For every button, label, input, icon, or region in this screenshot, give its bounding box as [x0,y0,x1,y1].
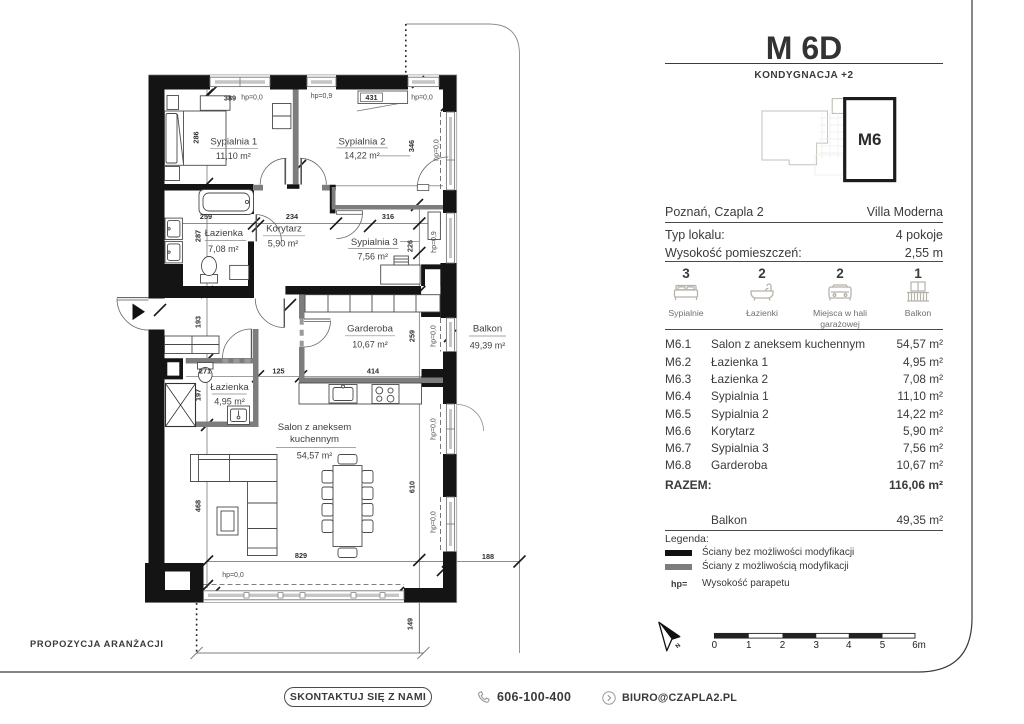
svg-text:4: 4 [846,640,852,651]
svg-text:414: 414 [367,367,380,376]
svg-text:Łazienka: Łazienka [205,228,244,239]
svg-text:5,90 m²: 5,90 m² [268,239,299,249]
svg-text:346: 346 [407,140,416,152]
svg-text:468: 468 [194,500,203,512]
svg-text:6m: 6m [912,640,926,651]
svg-text:54,57 m²: 54,57 m² [297,451,333,461]
svg-text:829: 829 [295,551,307,560]
svg-text:49,39 m²: 49,39 m² [470,341,506,351]
svg-text:hp=0,9: hp=0,9 [311,93,333,100]
svg-text:14,22 m²: 14,22 m² [344,151,380,161]
svg-text:M6: M6 [858,130,882,149]
svg-text:7,56 m²: 7,56 m² [357,252,388,262]
svg-text:226: 226 [406,240,415,252]
svg-text:Łazienka: Łazienka [210,382,249,393]
svg-text:259: 259 [200,212,212,221]
svg-text:hp=0,0: hp=0,0 [431,511,438,533]
svg-text:10,67 m²: 10,67 m² [352,340,388,350]
svg-text:234: 234 [286,212,299,221]
svg-text:316: 316 [382,212,394,221]
svg-text:1: 1 [746,640,751,651]
svg-text:7,08 m²: 7,08 m² [208,244,239,254]
svg-text:188: 188 [482,552,494,561]
svg-text:hp=0,0: hp=0,0 [222,572,244,579]
svg-text:3: 3 [814,640,820,651]
svg-text:hp=0,0: hp=0,0 [431,418,438,440]
svg-text:Sypialnia 2: Sypialnia 2 [339,137,386,148]
svg-text:kuchennym: kuchennym [290,434,339,445]
svg-text:149: 149 [406,618,415,630]
svg-text:hp=0,0: hp=0,0 [431,325,438,347]
svg-text:286: 286 [192,131,201,143]
svg-text:2: 2 [780,640,785,651]
svg-text:287: 287 [194,230,203,242]
svg-text:4,95 m²: 4,95 m² [214,397,245,407]
svg-text:N: N [675,643,682,650]
svg-text:Garderoba: Garderoba [347,324,394,335]
svg-text:11,10 m²: 11,10 m² [216,151,251,161]
svg-text:389: 389 [224,94,236,103]
svg-text:Sypialnia 3: Sypialnia 3 [351,237,398,248]
svg-text:125: 125 [272,367,284,376]
svg-text:0: 0 [712,640,718,651]
svg-text:hp=0,0: hp=0,0 [241,95,263,102]
svg-text:197: 197 [194,389,203,401]
svg-text:hp=0,0: hp=0,0 [434,139,441,161]
svg-text:610: 610 [408,481,417,493]
svg-text:Salon z aneksem: Salon z aneksem [278,422,352,433]
svg-text:193: 193 [194,316,203,328]
svg-text:Balkon: Balkon [473,324,502,335]
svg-text:hp=0,0: hp=0,0 [411,95,433,102]
svg-text:Korytarz: Korytarz [266,224,302,235]
svg-text:431: 431 [365,93,377,102]
svg-text:259: 259 [408,330,417,342]
svg-text:5: 5 [880,640,886,651]
svg-text:Sypialnia 1: Sypialnia 1 [210,137,257,148]
svg-text:hp=0,9: hp=0,9 [431,231,438,253]
svg-text:271: 271 [199,367,211,376]
